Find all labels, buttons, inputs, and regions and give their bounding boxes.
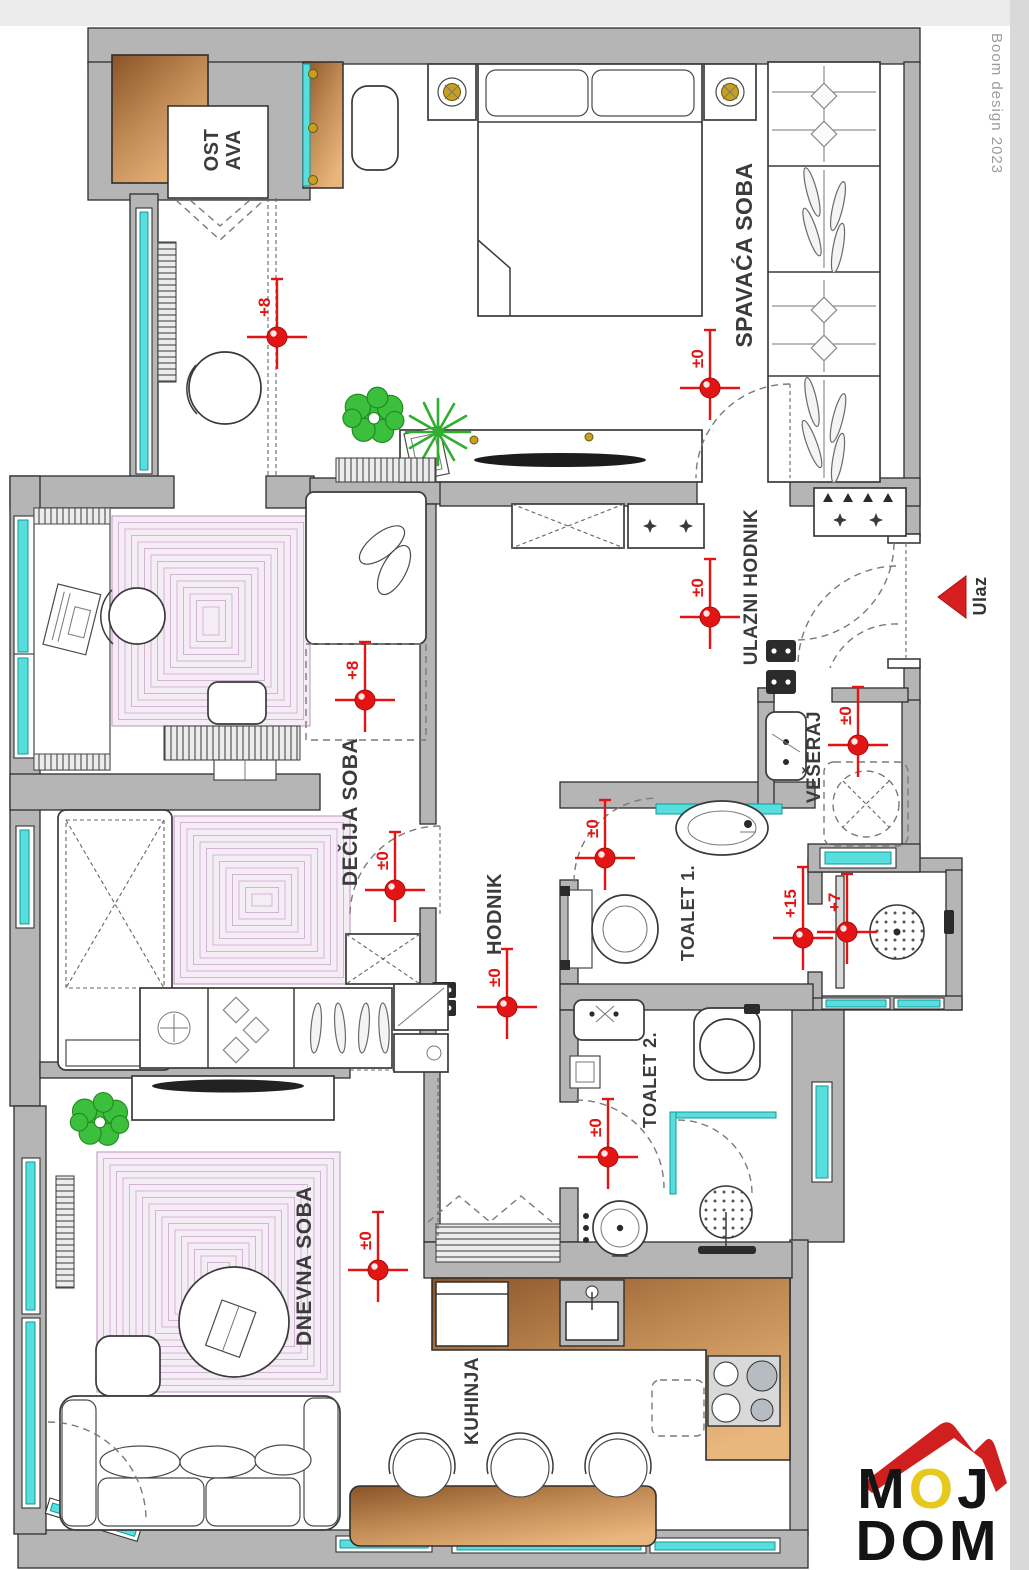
level-marker: +8 — [247, 279, 307, 369]
ostava-line2: AVA — [223, 130, 245, 171]
level-marker-label: ±0 — [373, 851, 392, 870]
level-marker-label: ±0 — [485, 968, 504, 987]
room-label-hodnik: HODNIK — [484, 873, 506, 955]
floorplan-page: OST AVA SPAVAĆA SOBA ULAZNI HODNIK DEČIJ… — [0, 0, 1029, 1570]
level-marker-label: ±0 — [583, 819, 602, 838]
room-label-spavaca-soba: SPAVAĆA SOBA — [730, 162, 757, 347]
level-marker: ±0 — [578, 1099, 638, 1189]
wardrobe-column — [768, 62, 880, 483]
plant — [70, 1093, 128, 1146]
room-label-decija-soba: DEČIJA SOBA — [338, 738, 362, 886]
level-marker-label: +8 — [255, 298, 274, 317]
desk-chair — [109, 588, 165, 644]
level-marker-label: ±0 — [688, 349, 707, 368]
pouf — [208, 682, 266, 724]
level-marker: ±0 — [477, 949, 537, 1039]
ostava-line1: OST — [201, 129, 223, 172]
logo-moj-dom: MOJ DOM — [856, 1422, 1007, 1570]
double-bed — [478, 64, 702, 316]
kitchen — [350, 1278, 790, 1546]
room-label-kuhinja: KUHINJA — [462, 1357, 483, 1445]
plant — [343, 387, 404, 442]
level-marker-label: +8 — [343, 661, 362, 680]
design-credit: Boom design 2023 — [988, 33, 1005, 174]
sofa — [60, 1396, 340, 1530]
pouf — [96, 1336, 160, 1396]
level-marker-label: ±0 — [688, 578, 707, 597]
level-marker: ±0 — [365, 832, 425, 922]
level-marker-label: +15 — [781, 889, 800, 918]
bedroom — [303, 62, 880, 483]
level-marker-label: ±0 — [836, 706, 855, 725]
level-marker-label: ±0 — [356, 1231, 375, 1250]
round-table — [189, 352, 261, 424]
room-label-dnevna-soba: DNEVNA SOBA — [293, 1186, 316, 1346]
level-marker: +15 — [773, 867, 833, 970]
room-label-toalet-1: TOALET 1. — [678, 865, 698, 961]
level-marker: ±0 — [575, 800, 635, 890]
level-marker: +8 — [335, 642, 395, 732]
room-label-ulazni-hodnik: ULAZNI HODNIK — [741, 509, 762, 665]
logo-line2: DOM — [856, 1509, 1001, 1570]
cabinet-row — [140, 984, 448, 1072]
room-label-toalet-2: TOALET 2. — [640, 1032, 660, 1128]
level-marker: ±0 — [348, 1212, 408, 1302]
level-marker-label: ±0 — [586, 1118, 605, 1137]
level-marker: +7 — [817, 874, 877, 964]
room-label-ostava: OST AVA — [201, 129, 245, 172]
entrance-label: Ulaz — [970, 576, 990, 615]
floorplan-svg: OST AVA SPAVAĆA SOBA ULAZNI HODNIK DEČIJ… — [0, 0, 1029, 1570]
dining-chairs — [389, 1433, 651, 1497]
level-marker: ±0 — [680, 559, 740, 649]
laundry-veseraj — [766, 640, 908, 846]
level-marker-label: +7 — [825, 893, 844, 912]
room-label-veseraj: VEŠERAJ — [803, 711, 825, 803]
bench — [352, 86, 398, 170]
entrance-arrow — [938, 576, 966, 618]
